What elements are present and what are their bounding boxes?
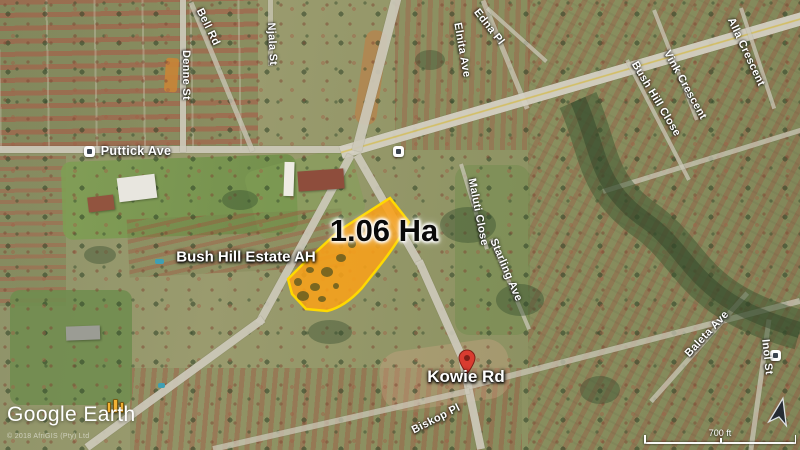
google-earth-map[interactable]: Denne StBell RdPuttick AveNjala StEdna P… xyxy=(0,0,800,450)
north-arrow-icon[interactable] xyxy=(764,396,794,428)
white-building xyxy=(117,174,158,202)
scale-tick-right xyxy=(795,435,797,443)
parcel-area-label: 1.06 Ha xyxy=(330,213,439,249)
grey-building xyxy=(66,325,100,340)
imagery-attribution: © 2018 AfriGIS (Pty) Ltd xyxy=(7,433,89,440)
poi-glyph xyxy=(773,353,778,358)
street-label: Puttick Ave xyxy=(101,144,171,158)
white-tower-building xyxy=(283,162,294,196)
pin-street-label: Kowie Rd xyxy=(427,367,504,387)
google-earth-watermark: Google Earth xyxy=(7,403,136,427)
greenbelt-band xyxy=(578,100,800,330)
scale-tick-mid xyxy=(720,438,722,443)
poi-icon[interactable] xyxy=(393,146,404,157)
poi-icon[interactable] xyxy=(84,146,95,157)
street-label: Denne St xyxy=(180,50,192,100)
scale-tick-left xyxy=(644,435,646,443)
estate-label: Bush Hill Estate AH xyxy=(176,249,315,266)
street-label: Njala St xyxy=(265,22,279,65)
swimming-pool xyxy=(155,259,164,264)
red-roof-building xyxy=(87,194,115,212)
scale-label: 700 ft xyxy=(644,428,796,438)
poi-glyph xyxy=(396,149,401,154)
swimming-pool xyxy=(158,383,165,388)
scale-bar: 700 ft xyxy=(644,430,796,446)
red-roof-complex xyxy=(297,168,344,191)
poi-glyph xyxy=(87,149,92,154)
